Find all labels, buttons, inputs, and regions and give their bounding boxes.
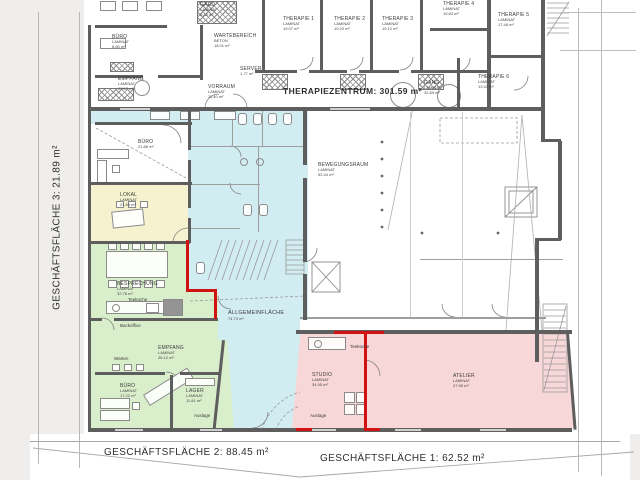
table <box>111 208 145 228</box>
partition <box>190 184 260 185</box>
room-area: 26.12 m² <box>158 356 184 361</box>
room-area: 16.01 m² <box>214 44 256 49</box>
wall <box>430 28 487 31</box>
grid-line <box>410 112 411 317</box>
wall <box>303 274 307 320</box>
room-label-therapie-2: THERAPIE 2 LAMINAT 19.20 m² <box>334 16 365 32</box>
exterior-stair-icon <box>543 304 567 392</box>
wall <box>170 375 173 431</box>
room-label-wartebereich: WARTEBEREICH BETON 16.01 m² <box>214 33 256 49</box>
dimension-line-bottom <box>30 441 620 442</box>
room-area: 11.81 m² <box>186 399 204 404</box>
dimension-line-top <box>560 50 636 51</box>
room-area: 5.88 m² <box>200 13 217 18</box>
wall <box>303 110 307 165</box>
room-label-gard: GARD LAMINAT 5.88 m² <box>200 2 217 18</box>
wall <box>88 241 190 244</box>
title-geschaeftsflaeche-1: GESCHÄFTSFLÄCHE 1: 62.52 m² <box>320 453 485 464</box>
room-label-lager: LAGER LAMINAT 11.81 m² <box>186 388 204 404</box>
room-label-therapie-1: THERAPIE 1 LAMINAT 19.07 m² <box>283 16 314 32</box>
desk <box>214 111 236 120</box>
dimension-line-right <box>578 8 579 472</box>
conference-table <box>106 251 168 278</box>
partition <box>190 146 304 147</box>
wall <box>303 178 307 234</box>
elevator-icon <box>312 262 340 292</box>
wall <box>457 58 460 110</box>
room-area: 21.86 m² <box>138 145 154 150</box>
room-area: 8.80 m² <box>112 45 129 50</box>
wall <box>541 110 545 142</box>
room-label-lokal: LOKAL LAMINAT 21.89 m² <box>120 192 137 208</box>
radiator-icon <box>110 62 134 72</box>
room-area: 13.43 m² <box>478 85 509 90</box>
wall <box>88 182 192 185</box>
stairwell-top-icon <box>547 2 569 36</box>
wall <box>200 25 203 80</box>
room-area: 19.20 m² <box>334 27 365 32</box>
room-label-server: SERVER 1.77 m² <box>240 66 262 77</box>
label-auslage-gf1: Auslage <box>310 413 326 418</box>
wall <box>95 372 165 375</box>
label-backoffice: Backoffice <box>120 323 141 328</box>
desk <box>100 1 116 11</box>
room-label-gang: GANG LAMINAT 32.89 m² <box>424 80 441 96</box>
room-area: 27.95 m² <box>453 384 475 389</box>
window <box>200 429 222 431</box>
partition <box>262 110 263 146</box>
label-teekueche-gf2: Teeküche <box>128 297 147 302</box>
room-area: 23.67 m² <box>118 87 144 92</box>
room-area: 1.77 m² <box>240 72 262 77</box>
wall <box>487 0 491 108</box>
room-area: 19.07 m² <box>283 27 314 32</box>
sink-icon <box>256 158 264 166</box>
label-teekueche-gf1: Teeküche <box>350 344 369 349</box>
window <box>395 429 421 431</box>
title-therapiezentrum: THERAPIEZENTRUM: 301.59 m² <box>283 86 422 96</box>
wall <box>158 75 203 78</box>
chair <box>124 364 132 371</box>
wall <box>188 110 191 150</box>
room-area: 19.12 m² <box>382 27 413 32</box>
window <box>330 108 370 110</box>
grid-line <box>462 112 463 317</box>
chair <box>112 165 120 173</box>
room-label-therapie-5: THERAPIE 5 LAMINAT 17.48 m² <box>498 12 529 28</box>
chair <box>136 364 144 371</box>
wall-left-outer <box>88 25 91 432</box>
table <box>344 392 355 403</box>
room-area: 34.95 m² <box>312 383 332 388</box>
room-label-studio: STUDIO LAMINAT 34.95 m² <box>312 372 332 388</box>
room-label-buero-top: BÜRO LAMINAT 8.80 m² <box>112 34 129 50</box>
room-label-therapie-6: THERAPIE 6 LAMINAT 13.43 m² <box>478 74 509 90</box>
wall-therapy-south <box>88 107 545 111</box>
wall <box>188 160 191 208</box>
room-area: 52.44 m² <box>318 173 368 178</box>
room-label-buero-gf2: BÜRO LAMINAT 17.22 m² <box>120 383 137 399</box>
room-label-bewegungsraum: BEWEGUNGSRAUM LAMINAT 52.44 m² <box>318 162 368 178</box>
title-geschaeftsflaeche-3: GESCHÄFTSFLÄCHE 3: 21.89 m² <box>52 143 63 313</box>
room-label-allgemeinflaeche: ALLGEMEINFLÄCHE 74.73 m² <box>228 310 284 322</box>
toilet-icon <box>283 113 292 125</box>
section-diagonals <box>388 108 542 330</box>
wall <box>309 70 347 73</box>
room-area: 11.40 m² <box>208 95 235 100</box>
desk <box>146 1 162 11</box>
appliance-icon <box>163 299 183 316</box>
wall <box>558 141 562 240</box>
grid-dots <box>381 141 500 235</box>
room-label-empfang-gf2: EMPFANG LAMINAT 26.12 m² <box>158 345 184 361</box>
room-label-besprechung: BESPRECHUNG LAMINAT 32.78 m² <box>117 281 158 297</box>
toilet-icon <box>238 113 247 125</box>
desk <box>150 111 170 120</box>
stair-main-icon <box>208 240 278 280</box>
toilet-icon <box>268 113 277 125</box>
room-label-buero-mitte: BÜRO 21.86 m² <box>138 139 154 150</box>
partition <box>420 259 563 260</box>
dimension-line-left <box>38 12 39 464</box>
red-wall-gf2 <box>186 240 189 292</box>
sink-icon <box>240 158 248 166</box>
partition <box>190 228 240 229</box>
chair <box>140 201 148 208</box>
room-label-empfang-top: EMPFANG LAMINAT 23.67 m² <box>118 76 144 92</box>
chair <box>132 402 140 410</box>
desk <box>122 1 138 11</box>
load-marker-box <box>505 187 537 217</box>
room-area: 21.89 m² <box>120 203 137 208</box>
red-wall <box>364 428 380 431</box>
room-label-therapie-3: THERAPIE 3 LAMINAT 19.12 m² <box>382 16 413 32</box>
desk <box>100 410 130 421</box>
room-area: 17.48 m² <box>498 23 529 28</box>
wall <box>88 318 102 321</box>
red-wall <box>296 428 312 431</box>
wall <box>411 70 452 73</box>
desk <box>97 149 129 159</box>
stair-secondary-icon <box>286 240 304 274</box>
desk <box>97 160 107 184</box>
toilet-icon <box>259 204 268 216</box>
window <box>120 108 150 110</box>
desk <box>100 398 130 409</box>
toilet-icon <box>243 204 252 216</box>
window <box>310 429 336 431</box>
wall <box>95 25 167 28</box>
room-area: 32.89 m² <box>424 91 441 96</box>
wall <box>420 0 423 72</box>
room-area: 19.63 m² <box>443 12 474 17</box>
window <box>115 429 143 431</box>
wall <box>262 0 265 72</box>
red-wall-gf2 <box>186 289 217 292</box>
floor-plan-sheet: BÜRO LAMINAT 8.80 m² EMPFANG LAMINAT 23.… <box>0 0 640 480</box>
chair <box>108 280 117 288</box>
wall <box>114 318 218 321</box>
wall <box>370 0 373 72</box>
wall <box>490 55 545 58</box>
wall <box>303 232 307 262</box>
red-wall-gf2 <box>214 289 217 319</box>
wall <box>535 240 539 362</box>
room-area: 17.22 m² <box>120 394 137 399</box>
wall <box>95 122 192 125</box>
room-label-atelier: ATELIER LAMINAT 27.95 m² <box>453 373 475 389</box>
title-geschaeftsflaeche-2: GESCHÄFTSFLÄCHE 2: 88.45 m² <box>104 447 269 458</box>
toilet-icon <box>253 113 262 125</box>
sink-icon <box>112 304 120 312</box>
toilet-icon <box>196 262 205 274</box>
dimension-line-right <box>601 0 602 476</box>
room-area: 74.73 m² <box>228 317 284 322</box>
room-label-vorraum: VORRAUM LAMINAT 11.40 m² <box>208 84 235 100</box>
label-warten: Warten <box>114 356 128 361</box>
red-wall-gf1-top <box>334 331 384 334</box>
wall <box>320 0 323 72</box>
chair <box>112 364 120 371</box>
dimension-line-left <box>79 12 80 468</box>
room-label-therapie-4: THERAPIE 4 LAMINAT 19.63 m² <box>443 1 474 17</box>
dimension-line-top <box>560 12 636 13</box>
partition <box>300 317 546 319</box>
shelf <box>185 378 215 386</box>
wall <box>180 372 220 375</box>
wall <box>359 70 399 73</box>
table <box>344 404 355 415</box>
label-auslage-gf2: Auslage <box>194 413 210 418</box>
sink-icon <box>314 340 322 348</box>
stove-icon <box>146 303 159 313</box>
window <box>480 429 506 431</box>
